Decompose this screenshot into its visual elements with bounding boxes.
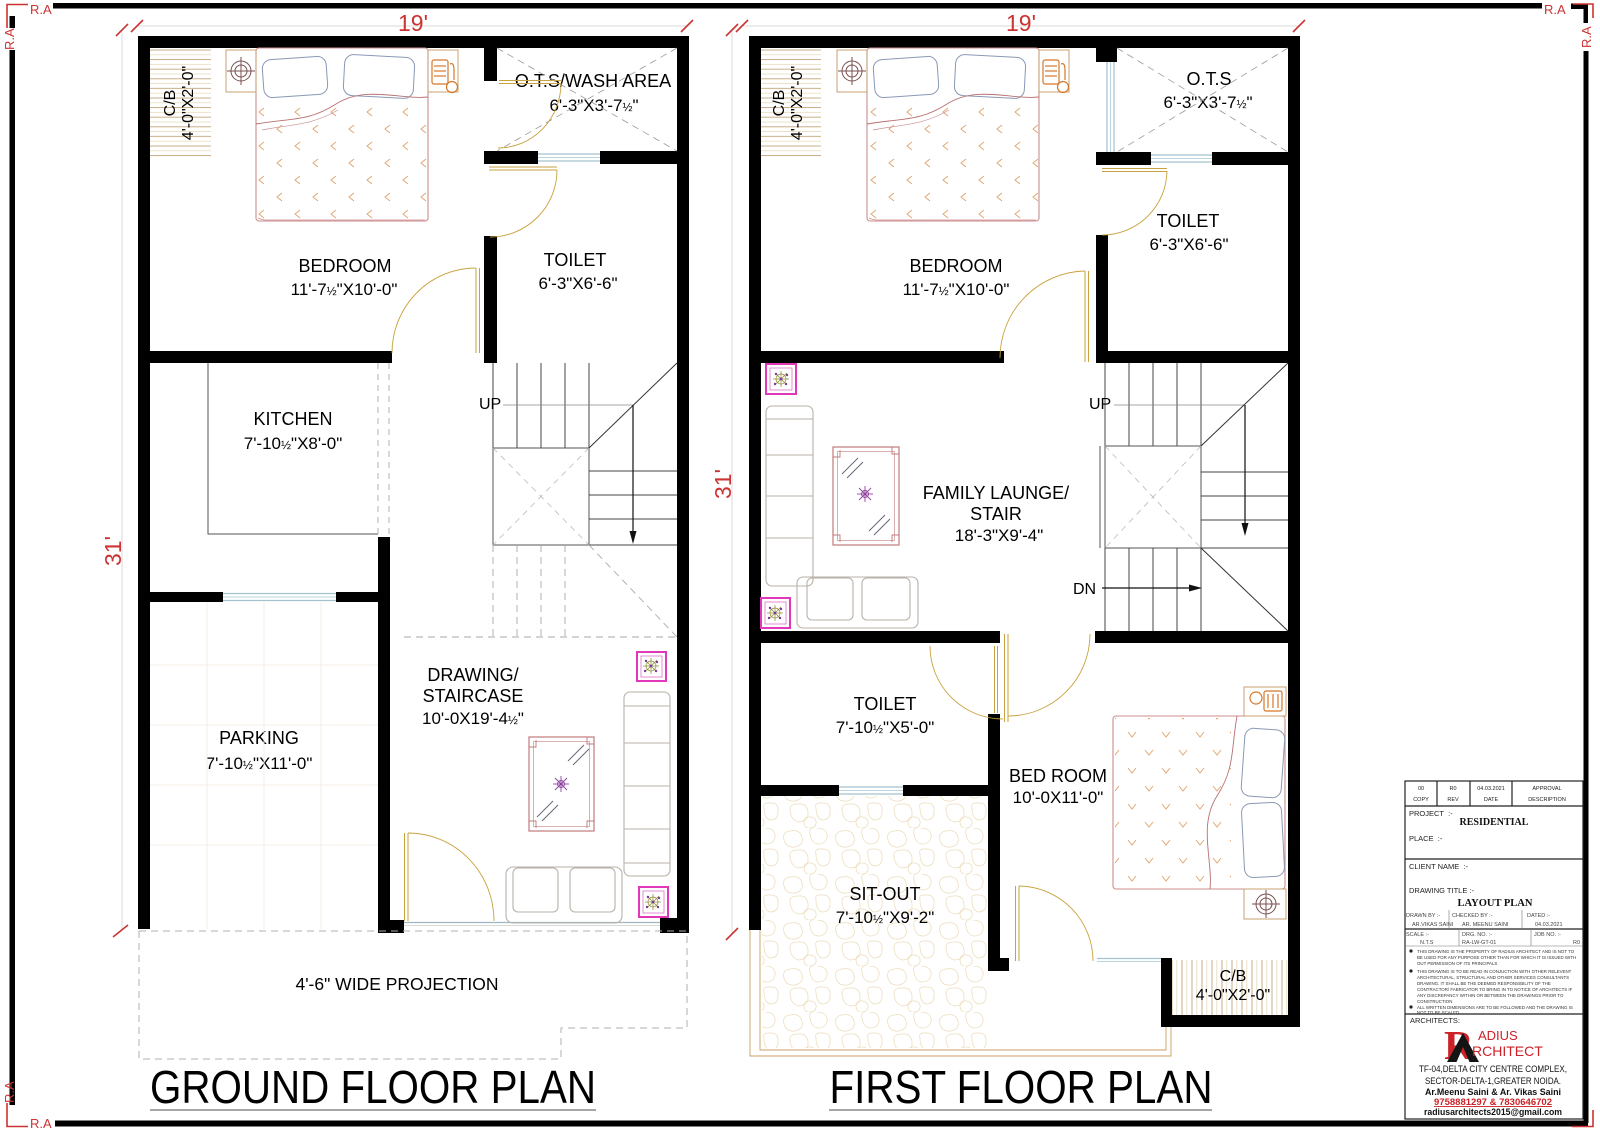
svg-text:CONSTRUCTION: CONSTRUCTION xyxy=(1417,999,1452,1004)
svg-text:18'-3"X9'-4": 18'-3"X9'-4" xyxy=(955,526,1044,545)
svg-text:31': 31' xyxy=(710,469,736,499)
svg-text:R.A: R.A xyxy=(1544,2,1566,17)
svg-text:radiusarchitects2015@gmail.com: radiusarchitects2015@gmail.com xyxy=(1424,1107,1562,1117)
svg-text:C/B: C/B xyxy=(1220,968,1247,985)
svg-text:6'-3"X6'-6": 6'-3"X6'-6" xyxy=(1149,235,1228,254)
svg-text:REV: REV xyxy=(1447,797,1459,803)
svg-text:R.A: R.A xyxy=(1579,26,1594,48)
svg-text:R.A: R.A xyxy=(30,1116,52,1130)
svg-text:AR.VIKAS SAINI: AR.VIKAS SAINI xyxy=(1412,922,1454,928)
svg-text:PROJECT :-: PROJECT :- xyxy=(1409,809,1453,818)
svg-text:FIRST FLOOR PLAN: FIRST FLOOR PLAN xyxy=(830,1061,1213,1113)
svg-text:TOILET: TOILET xyxy=(854,694,917,714)
svg-text:RCHITECT: RCHITECT xyxy=(1472,1043,1543,1059)
svg-text:ADIUS: ADIUS xyxy=(1478,1028,1518,1043)
svg-text:STAIRCASE: STAIRCASE xyxy=(423,686,524,706)
svg-text:DESCRIPTION: DESCRIPTION xyxy=(1528,797,1566,803)
svg-text:RESIDENTIAL: RESIDENTIAL xyxy=(1460,817,1529,828)
svg-text:STAIR: STAIR xyxy=(970,504,1022,524)
svg-text:C/B: C/B xyxy=(162,90,179,117)
svg-text:DN: DN xyxy=(1073,581,1096,598)
svg-text:7'-10½"X9'-2": 7'-10½"X9'-2" xyxy=(836,908,935,927)
svg-text:7'-10½"X5'-0": 7'-10½"X5'-0" xyxy=(836,718,935,737)
svg-text:ANY DISCREPANCY WITHIN OR BETW: ANY DISCREPANCY WITHIN OR BETWEEN THE DR… xyxy=(1417,993,1564,998)
svg-text:11'-7½"X10'-0": 11'-7½"X10'-0" xyxy=(903,280,1010,299)
svg-text:DRAWING/: DRAWING/ xyxy=(427,665,518,685)
svg-text:SCALE :-: SCALE :- xyxy=(1406,932,1429,938)
svg-text:C/B: C/B xyxy=(771,90,788,117)
svg-text:7'-10½"X8'-0": 7'-10½"X8'-0" xyxy=(244,434,343,453)
svg-text:NOT TO BE SCALED.: NOT TO BE SCALED. xyxy=(1417,1010,1460,1015)
svg-text:04.03.2021: 04.03.2021 xyxy=(1535,922,1563,928)
svg-text:SIT-OUT: SIT-OUT xyxy=(850,884,921,904)
svg-text:UP: UP xyxy=(479,396,501,413)
svg-text:R.A: R.A xyxy=(2,28,17,50)
svg-text:CHECKED BY :-: CHECKED BY :- xyxy=(1452,913,1493,919)
svg-text:BED ROOM: BED ROOM xyxy=(1009,766,1107,786)
svg-text:JOB NO. :-: JOB NO. :- xyxy=(1534,932,1561,938)
svg-text:SECTOR-DELTA-1,GREATER NOIDA.: SECTOR-DELTA-1,GREATER NOIDA. xyxy=(1425,1076,1561,1086)
svg-text:COPY: COPY xyxy=(1413,797,1429,803)
svg-text:GROUND FLOOR PLAN: GROUND FLOOR PLAN xyxy=(150,1061,596,1113)
svg-text:19': 19' xyxy=(1006,10,1036,36)
svg-text:FAMILY LAUNGE/: FAMILY LAUNGE/ xyxy=(923,483,1069,503)
svg-text:31': 31' xyxy=(100,536,126,566)
svg-text:N.T.S: N.T.S xyxy=(1420,940,1434,946)
svg-text:BE USED FOR ANY PURPOSE OTHER: BE USED FOR ANY PURPOSE OTHER THAN FOR W… xyxy=(1417,955,1576,960)
svg-text:Ar.Meenu Saini & Ar. Vikas Sai: Ar.Meenu Saini & Ar. Vikas Saini xyxy=(1425,1087,1561,1097)
svg-text:CONTRACTOR/ FABRICATOR TO BRIN: CONTRACTOR/ FABRICATOR TO BRING IN TO NO… xyxy=(1417,987,1573,992)
svg-text:DRAWN BY :-: DRAWN BY :- xyxy=(1406,913,1440,919)
svg-text:00: 00 xyxy=(1418,786,1424,792)
svg-text:OUT PERMISSION OF ITS PRINCIPA: OUT PERMISSION OF ITS PRINCIPALS xyxy=(1417,961,1497,966)
svg-text:CLIENT NAME :-: CLIENT NAME :- xyxy=(1409,862,1469,871)
svg-text:BEDROOM: BEDROOM xyxy=(298,256,391,276)
svg-text:R0: R0 xyxy=(1449,786,1456,792)
svg-text:4'-6" WIDE PROJECTION: 4'-6" WIDE PROJECTION xyxy=(295,974,498,994)
svg-text:R0: R0 xyxy=(1573,940,1580,946)
svg-text:4'-0"X2'-0": 4'-0"X2'-0" xyxy=(180,66,197,140)
svg-text:APPROVAL: APPROVAL xyxy=(1532,786,1561,792)
svg-text:DRG. NO. :-: DRG. NO. :- xyxy=(1462,932,1492,938)
svg-text:TOILET: TOILET xyxy=(544,250,607,270)
svg-text:DATE: DATE xyxy=(1484,797,1499,803)
svg-text:11'-7½"X10'-0": 11'-7½"X10'-0" xyxy=(291,280,398,299)
svg-text:PLACE :-: PLACE :- xyxy=(1409,834,1443,843)
svg-text:7'-10½"X11'-0": 7'-10½"X11'-0" xyxy=(206,754,313,773)
svg-text:TF-04,DELTA CITY CENTRE COMPLE: TF-04,DELTA CITY CENTRE COMPLEX, xyxy=(1419,1064,1567,1074)
svg-text:19': 19' xyxy=(398,10,428,36)
svg-text:R.A: R.A xyxy=(30,2,52,17)
svg-text:6'-3"X6'-6": 6'-3"X6'-6" xyxy=(538,274,617,293)
svg-text:AR. MEENU SAINI: AR. MEENU SAINI xyxy=(1462,922,1509,928)
svg-text:DRAWING TITLE :-: DRAWING TITLE :- xyxy=(1409,886,1475,895)
svg-text:9758881297 & 7830646702: 9758881297 & 7830646702 xyxy=(1434,1097,1552,1107)
svg-text:LAYOUT PLAN: LAYOUT PLAN xyxy=(1458,898,1533,909)
svg-text:THIS DRAWING IS TO BE READ IN: THIS DRAWING IS TO BE READ IN CONJUCTION… xyxy=(1417,969,1572,974)
svg-text:R.A: R.A xyxy=(2,1081,17,1103)
svg-text:4'-0"X2'-0": 4'-0"X2'-0" xyxy=(789,66,806,140)
svg-text:04.03.2021: 04.03.2021 xyxy=(1477,786,1505,792)
svg-text:DATED :-: DATED :- xyxy=(1527,913,1550,919)
svg-text:THIS DRAWING IS THE PROPERTY O: THIS DRAWING IS THE PROPERTY OF RADIUS A… xyxy=(1417,949,1575,954)
svg-text:DRAWING. IT SHALL BE THE DEEME: DRAWING. IT SHALL BE THE DEEMED RESPONSI… xyxy=(1417,981,1551,986)
svg-text:KITCHEN: KITCHEN xyxy=(253,409,332,429)
svg-text:UP: UP xyxy=(1089,396,1111,413)
svg-text:4'-0"X2'-0": 4'-0"X2'-0" xyxy=(1196,987,1270,1004)
svg-text:BEDROOM: BEDROOM xyxy=(909,256,1002,276)
svg-text:10'-0X11'-0": 10'-0X11'-0" xyxy=(1013,788,1104,807)
svg-text:RA-LW-GT-01: RA-LW-GT-01 xyxy=(1462,940,1496,946)
svg-text:TOILET: TOILET xyxy=(1157,211,1220,231)
svg-text:PARKING: PARKING xyxy=(219,728,299,748)
svg-text:ARCHITECTURAL, STRUCTURAL AND: ARCHITECTURAL, STRUCTURAL AND OTHER SERV… xyxy=(1417,975,1569,980)
